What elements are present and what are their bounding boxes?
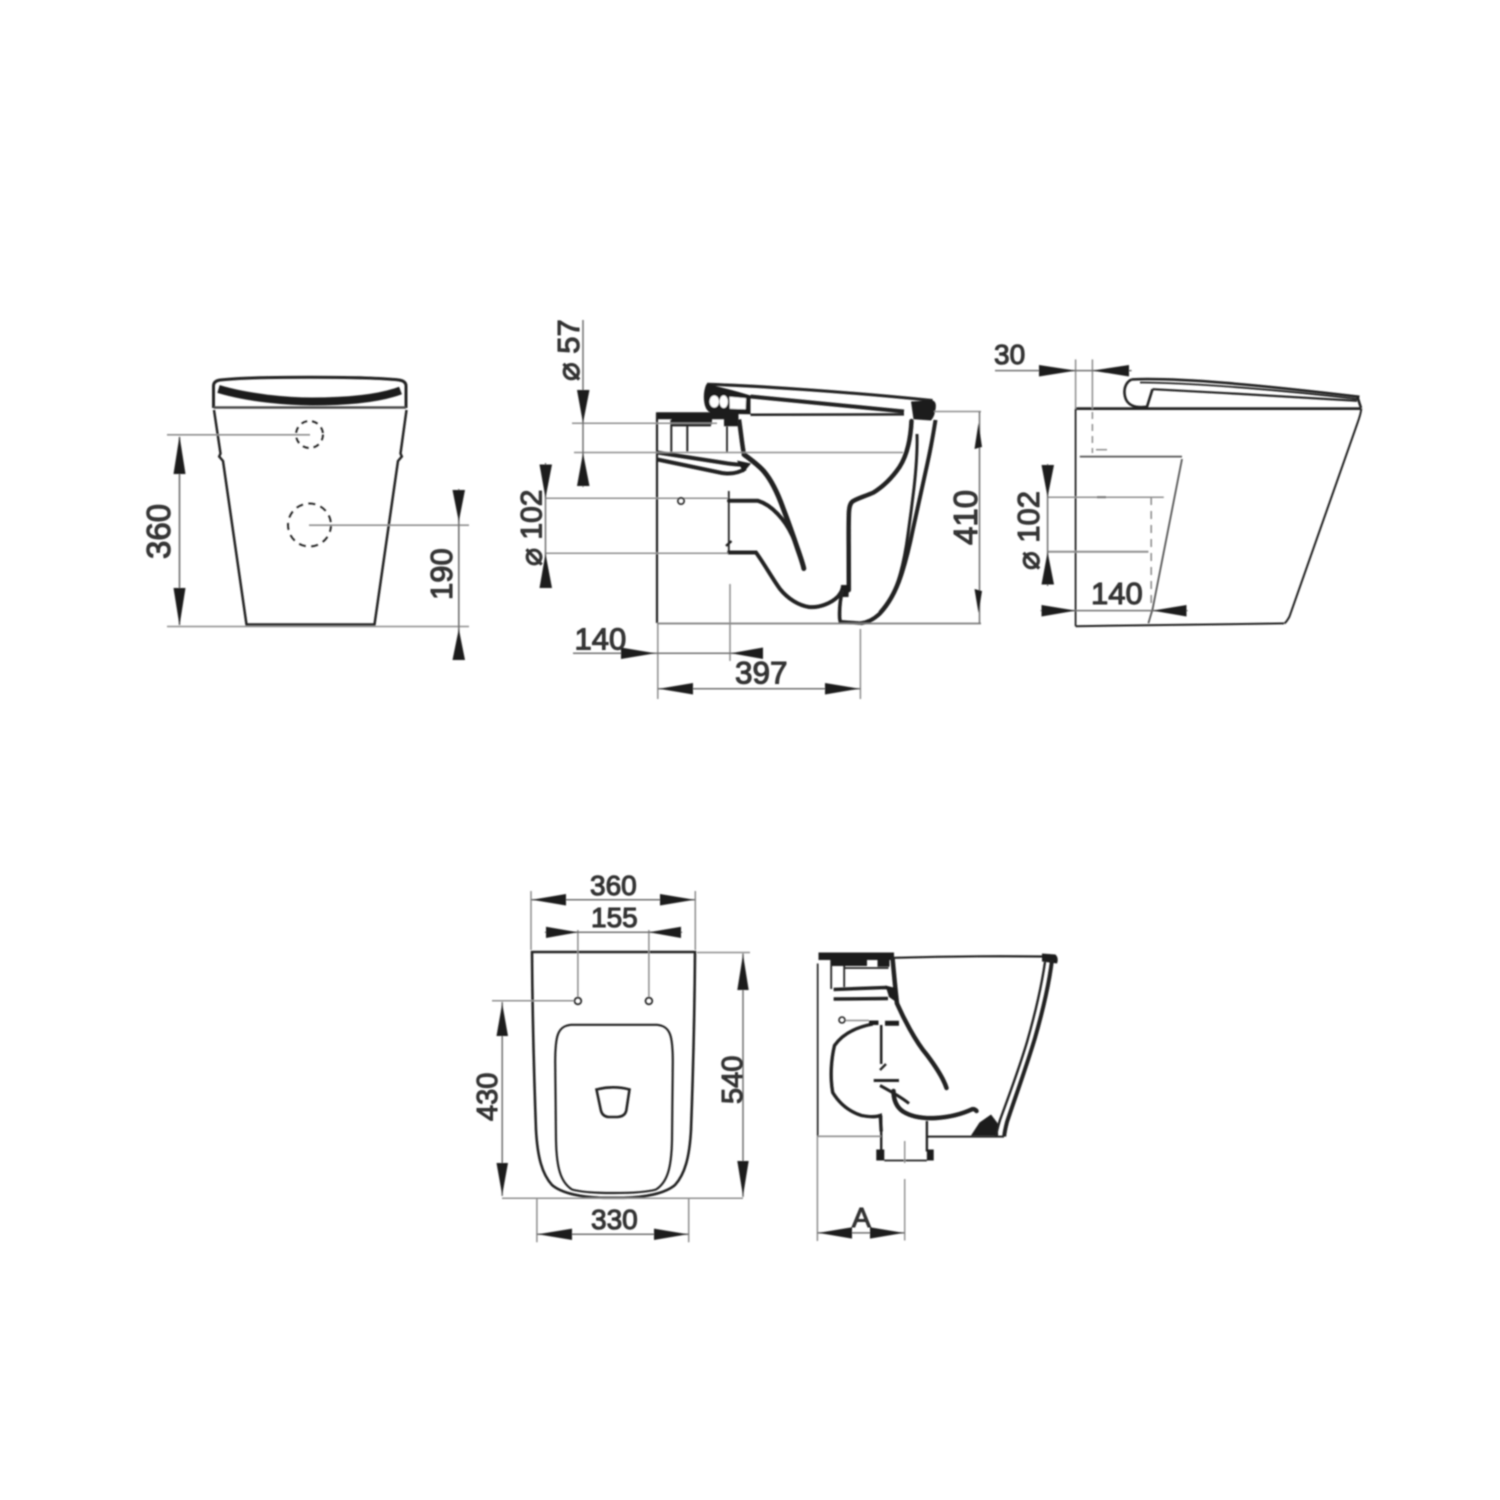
svg-text:190: 190: [424, 548, 459, 600]
svg-text:30: 30: [994, 339, 1025, 370]
svg-text:140: 140: [1091, 576, 1143, 611]
svg-text:⌀ 57: ⌀ 57: [551, 319, 586, 381]
svg-text:⌀ 102: ⌀ 102: [516, 490, 549, 566]
svg-text:140: 140: [575, 622, 627, 657]
svg-text:430: 430: [472, 1073, 504, 1121]
svg-text:410: 410: [947, 490, 984, 545]
svg-text:540: 540: [717, 1056, 749, 1104]
svg-text:155: 155: [591, 902, 638, 933]
svg-text:397: 397: [735, 655, 788, 691]
svg-text:360: 360: [140, 504, 177, 559]
svg-text:⌀ 102: ⌀ 102: [1011, 491, 1046, 570]
svg-text:360: 360: [590, 870, 637, 901]
svg-text:330: 330: [591, 1204, 638, 1235]
svg-text:A: A: [852, 1202, 871, 1233]
